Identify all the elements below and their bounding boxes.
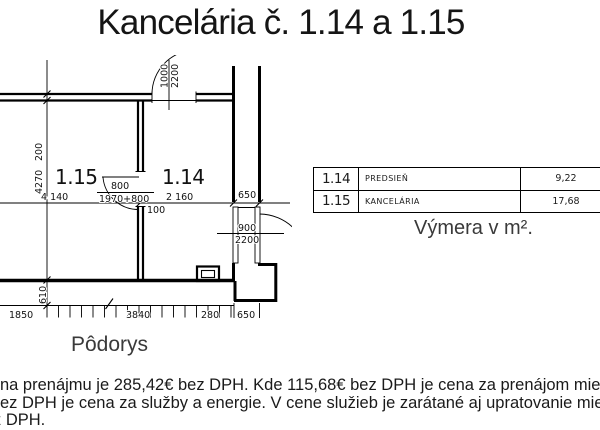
area-unit-caption: Výmera v m². xyxy=(414,217,533,240)
footer-text-line-1: na prenájmu je 285,42€ bez DPH. Kde 115,… xyxy=(0,376,600,395)
room-name-cell: PREDSIEŇ xyxy=(359,168,521,191)
dim-door115-width: 800 xyxy=(111,181,129,192)
shaft-box-inner xyxy=(202,271,215,278)
dim-height-left: 4270 xyxy=(34,170,45,194)
right-corridor-walls xyxy=(234,66,260,282)
floor-plan: 1.15 1.14 200 4270 4 140 800 1970+800 2 … xyxy=(0,55,292,365)
footer-text-line-3: z DPH. xyxy=(0,411,45,430)
dim-width-114: 2 160 xyxy=(166,192,193,203)
dim-door-right-height: 2200 xyxy=(235,235,259,246)
bottom-right-block xyxy=(234,263,277,301)
area-table: 1.14 PREDSIEŇ 9,22 1.15 KANCELÁRIA 17,68 xyxy=(313,167,600,213)
dim-door115-chain: 1970+800 xyxy=(99,194,149,205)
dim-bottom-1850: 1850 xyxy=(9,310,33,321)
room-name-cell: KANCELÁRIA xyxy=(359,191,521,214)
page-title: Kancelária č. 1.14 a 1.15 xyxy=(0,3,562,43)
footer-text-line-2: ez DPH je cena za služby a energie. V ce… xyxy=(0,394,600,413)
dim-wall-mid: 100 xyxy=(147,205,165,216)
top-door-opening-line xyxy=(152,92,196,104)
room-number-cell: 1.15 xyxy=(314,191,359,214)
dim-corridor-width: 650 xyxy=(238,190,256,201)
room-label-114: 1.14 xyxy=(162,165,205,189)
room-label-115: 1.15 xyxy=(55,165,98,189)
dim-width-115: 4 140 xyxy=(41,192,68,203)
room-area-cell: 17,68 xyxy=(521,191,600,214)
dim-door-top-height: 2200 xyxy=(170,64,181,88)
room-area-cell: 9,22 xyxy=(521,168,600,191)
dim-bottom-280: 280 xyxy=(201,310,219,321)
plan-caption: Pôdorys xyxy=(71,333,148,357)
dim-door-top-width: 1000 xyxy=(160,64,171,88)
dimension-arrow-slashes xyxy=(44,91,264,310)
dim-wall-top: 200 xyxy=(34,143,45,161)
dim-bottom-3840: 3840 xyxy=(126,310,150,321)
top-walls xyxy=(0,94,233,101)
partition-wall xyxy=(138,101,143,279)
dim-bottom-650: 650 xyxy=(237,310,255,321)
dim-step-band: 610 xyxy=(38,286,49,304)
dim-door-right-width: 900 xyxy=(238,223,256,234)
right-door-arc xyxy=(260,214,293,229)
slide-page: { "title": "Kancelária č. 1.14 a 1.15", … xyxy=(0,0,600,426)
room-number-cell: 1.14 xyxy=(314,168,359,191)
